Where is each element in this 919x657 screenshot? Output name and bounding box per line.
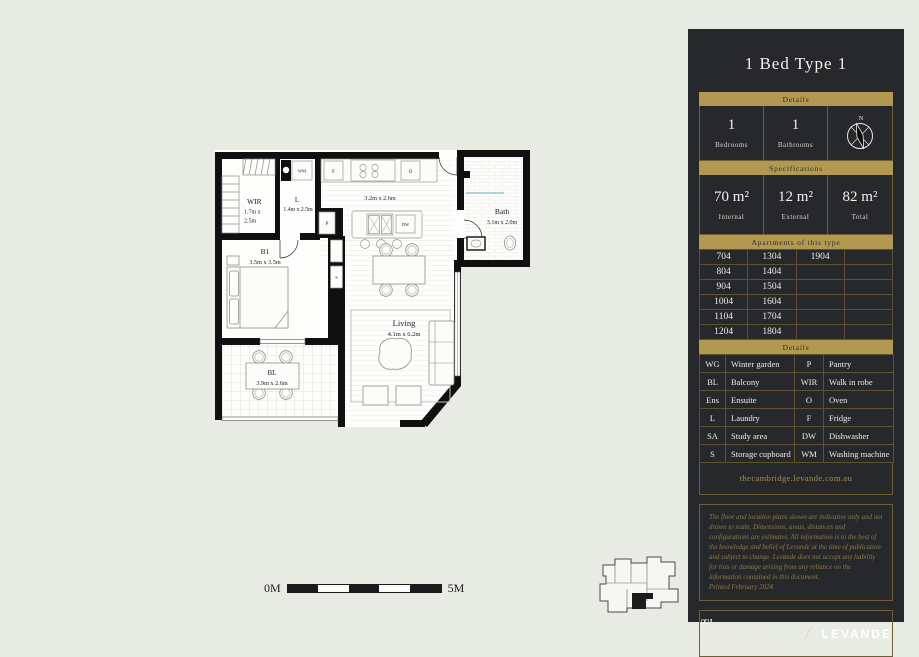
balcony-label: BL bbox=[268, 369, 277, 377]
table-row: WG Winter garden P Pantry bbox=[700, 355, 894, 373]
wir-dims-1: 1.7m x bbox=[244, 210, 261, 216]
apartment-number bbox=[844, 280, 892, 295]
fridge-tag: F bbox=[332, 170, 335, 175]
legend-desc: Study area bbox=[726, 427, 795, 445]
bathrooms-label: Bathrooms bbox=[778, 141, 813, 149]
legend-abbr: BL bbox=[700, 373, 726, 391]
details-grid: 1 Bedrooms 1 Bathrooms N bbox=[699, 106, 893, 161]
specifications-header: Specifications bbox=[699, 161, 893, 175]
apartment-number: 1304 bbox=[748, 250, 796, 265]
info-panel: 1 Bed Type 1 Details 1 Bedrooms 1 Bathro… bbox=[688, 29, 904, 622]
bed bbox=[227, 256, 288, 328]
apartment-number bbox=[844, 310, 892, 325]
internal-area-label: Internal bbox=[719, 213, 745, 221]
apartment-number bbox=[796, 310, 844, 325]
website-url: thecambridge.levande.com.au bbox=[699, 463, 893, 495]
legend-abbr: Ens bbox=[700, 391, 726, 409]
legend-abbr: WG bbox=[700, 355, 726, 373]
external-area-cell: 12 m² External bbox=[764, 175, 828, 234]
apartment-number bbox=[796, 280, 844, 295]
scale-bar: 0M 5M bbox=[264, 581, 464, 596]
floor-plan: WIR 1.7m x 2.5m L 1.4m x 2.5m 3.2m x 2.6… bbox=[205, 140, 545, 445]
legend-abbr: WM bbox=[795, 445, 824, 463]
apartment-number: 1104 bbox=[700, 310, 748, 325]
legend-abbr: S bbox=[700, 445, 726, 463]
scale-right-label: 5M bbox=[448, 581, 465, 596]
disclaimer-text: The floor and location plans shown are i… bbox=[709, 513, 883, 583]
living-label: Living bbox=[393, 318, 416, 328]
legend-desc: Ensuite bbox=[726, 391, 795, 409]
apartment-number bbox=[796, 265, 844, 280]
internal-area-value: 70 m² bbox=[714, 189, 749, 206]
apartment-number: 1004 bbox=[700, 295, 748, 310]
pantry-tag: P bbox=[326, 222, 329, 227]
legend-desc: Oven bbox=[824, 391, 894, 409]
apartments-table: 704 1304 1904 804 1404 904 1504 bbox=[699, 249, 893, 340]
bedrooms-value: 1 bbox=[728, 117, 736, 134]
table-row: 804 1404 bbox=[700, 265, 893, 280]
oven-tag: O bbox=[409, 170, 413, 175]
table-row: 704 1304 1904 bbox=[700, 250, 893, 265]
legend-desc: Walk in robe bbox=[824, 373, 894, 391]
legend-abbr: L bbox=[700, 409, 726, 427]
wir-dims-2: 2.5m bbox=[244, 219, 257, 225]
dishwasher-tag: DW bbox=[402, 222, 410, 227]
apartment-number: 1204 bbox=[700, 325, 748, 340]
apartment-number bbox=[844, 325, 892, 340]
table-row: 1204 1804 bbox=[700, 325, 893, 340]
apartment-number: 704 bbox=[700, 250, 748, 265]
printed-date: Printed February 2024. bbox=[709, 583, 883, 593]
legend-abbr: DW bbox=[795, 427, 824, 445]
apartment-number: 1404 bbox=[748, 265, 796, 280]
legend-desc: Pantry bbox=[824, 355, 894, 373]
bath-dims: 3.1m x 2.0m bbox=[487, 220, 518, 226]
the-cambridge-logo: The Cambridge bbox=[700, 617, 794, 651]
total-area-label: Total bbox=[852, 213, 869, 221]
brand-divider: / bbox=[805, 623, 810, 645]
legend-desc: Laundry bbox=[726, 409, 795, 427]
disclaimer-box: The floor and location plans shown are i… bbox=[699, 504, 893, 601]
page-title: 1 Bed Type 1 bbox=[699, 54, 893, 74]
specifications-grid: 70 m² Internal 12 m² External 82 m² Tota… bbox=[699, 175, 893, 235]
table-row: L Laundry F Fridge bbox=[700, 409, 894, 427]
apartment-number: 804 bbox=[700, 265, 748, 280]
levande-logo: LEVANDE bbox=[822, 627, 892, 641]
bedroom-label: B1 bbox=[261, 247, 270, 256]
storage-tag: S bbox=[335, 275, 337, 280]
kitchen-bench bbox=[321, 159, 437, 182]
legend-abbr: SA bbox=[700, 427, 726, 445]
external-area-label: External bbox=[782, 213, 810, 221]
apartment-number: 1904 bbox=[796, 250, 844, 265]
total-area-value: 82 m² bbox=[843, 189, 878, 206]
apartment-number: 1604 bbox=[748, 295, 796, 310]
apartments-header: Apartments of this type bbox=[699, 235, 893, 249]
legend-desc: Storage cupboard bbox=[726, 445, 795, 463]
legend-abbr: P bbox=[795, 355, 824, 373]
compass-cell: N bbox=[828, 106, 892, 160]
compass-north-label: N bbox=[859, 115, 864, 122]
table-row: 1104 1704 bbox=[700, 310, 893, 325]
apartment-number bbox=[844, 265, 892, 280]
legend-abbr: F bbox=[795, 409, 824, 427]
table-row: 904 1504 bbox=[700, 280, 893, 295]
apartment-number bbox=[844, 295, 892, 310]
table-row: 1004 1604 bbox=[700, 295, 893, 310]
legend-desc: Washing machine bbox=[824, 445, 894, 463]
wir-label: WIR bbox=[247, 197, 262, 206]
legend-table: WG Winter garden P Pantry BL Balcony WIR… bbox=[699, 354, 894, 463]
bedrooms-label: Bedrooms bbox=[715, 141, 748, 149]
laundry-label: L bbox=[295, 196, 299, 204]
apartment-number bbox=[796, 295, 844, 310]
kitchen-dims: 3.2m x 2.6m bbox=[364, 195, 395, 202]
details-header: Details bbox=[699, 92, 893, 106]
apartment-number bbox=[796, 325, 844, 340]
bathrooms-value: 1 bbox=[792, 117, 800, 134]
legend-desc: Dishwasher bbox=[824, 427, 894, 445]
legend-desc: Winter garden bbox=[726, 355, 795, 373]
apartment-number: 1704 bbox=[748, 310, 796, 325]
laundry-fixtures bbox=[281, 160, 312, 181]
external-area-value: 12 m² bbox=[778, 189, 813, 206]
internal-area-cell: 70 m² Internal bbox=[700, 175, 764, 234]
key-plan-icon bbox=[595, 549, 683, 623]
bathrooms-cell: 1 Bathrooms bbox=[764, 106, 828, 160]
table-row: S Storage cupboard WM Washing machine bbox=[700, 445, 894, 463]
apartment-number: 1804 bbox=[748, 325, 796, 340]
legend-header: Details bbox=[699, 340, 893, 354]
bedroom-dims: 3.5m x 3.5m bbox=[249, 259, 280, 266]
apartment-number: 904 bbox=[700, 280, 748, 295]
balcony-dims: 3.9m x 2.6m bbox=[256, 380, 287, 387]
legend-desc: Balcony bbox=[726, 373, 795, 391]
bath-label: Bath bbox=[495, 207, 509, 216]
scale-left-label: 0M bbox=[264, 581, 281, 596]
apartment-number: 1504 bbox=[748, 280, 796, 295]
table-row: BL Balcony WIR Walk in robe bbox=[700, 373, 894, 391]
legend-abbr: O bbox=[795, 391, 824, 409]
apartment-number bbox=[844, 250, 892, 265]
compass-icon: N bbox=[840, 112, 880, 154]
scale-bar-segments bbox=[287, 584, 442, 593]
living-dims: 4.1m x 6.2m bbox=[388, 331, 421, 338]
laundry-dims: 1.4m x 2.5m bbox=[283, 207, 313, 213]
washing-machine-tag: WM bbox=[298, 169, 306, 174]
brochure-page: WIR 1.7m x 2.5m L 1.4m x 2.5m 3.2m x 2.6… bbox=[0, 0, 919, 650]
bedrooms-cell: 1 Bedrooms bbox=[700, 106, 764, 160]
total-area-cell: 82 m² Total bbox=[828, 175, 892, 234]
legend-abbr: WIR bbox=[795, 373, 824, 391]
legend-desc: Fridge bbox=[824, 409, 894, 427]
table-row: SA Study area DW Dishwasher bbox=[700, 427, 894, 445]
table-row: Ens Ensuite O Oven bbox=[700, 391, 894, 409]
